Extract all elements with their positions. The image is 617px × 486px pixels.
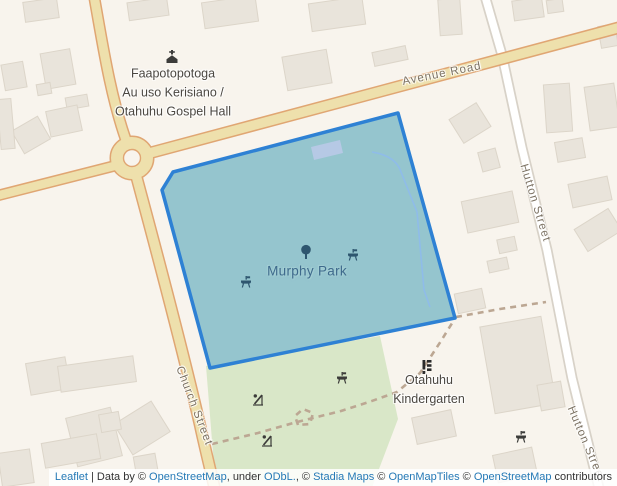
building	[1, 61, 27, 90]
building	[546, 0, 564, 14]
attribution-text: , under	[227, 471, 264, 483]
openstreetmap-contributors-link[interactable]: OpenStreetMap	[474, 471, 552, 483]
building	[543, 83, 572, 133]
attribution-text: , ©	[296, 471, 313, 483]
attribution-bar: Leaflet | Data by © OpenStreetMap, under…	[49, 469, 617, 486]
attribution-text: ©	[460, 471, 474, 483]
building	[282, 49, 332, 90]
map-tiles	[0, 0, 617, 486]
building	[554, 138, 585, 163]
openmaptiles-link[interactable]: OpenMapTiles	[388, 471, 459, 483]
building	[584, 83, 617, 131]
building	[438, 0, 462, 36]
map-canvas[interactable]: Faapotopotoga Au uso Kerisiano / Otahuhu…	[0, 0, 617, 486]
building	[497, 236, 518, 253]
building	[512, 0, 544, 21]
building	[99, 411, 122, 432]
odbl-link[interactable]: ODbL.	[264, 471, 296, 483]
leaflet-link[interactable]: Leaflet	[55, 471, 88, 483]
building	[537, 381, 565, 411]
building	[0, 449, 34, 486]
attribution-text: contributors	[551, 471, 612, 483]
openstreetmap-link[interactable]: OpenStreetMap	[149, 471, 227, 483]
roundabout-island	[124, 150, 141, 167]
attribution-text: ©	[374, 471, 388, 483]
stadia-maps-link[interactable]: Stadia Maps	[313, 471, 374, 483]
attribution-text: | Data by ©	[88, 471, 149, 483]
building	[36, 82, 52, 95]
